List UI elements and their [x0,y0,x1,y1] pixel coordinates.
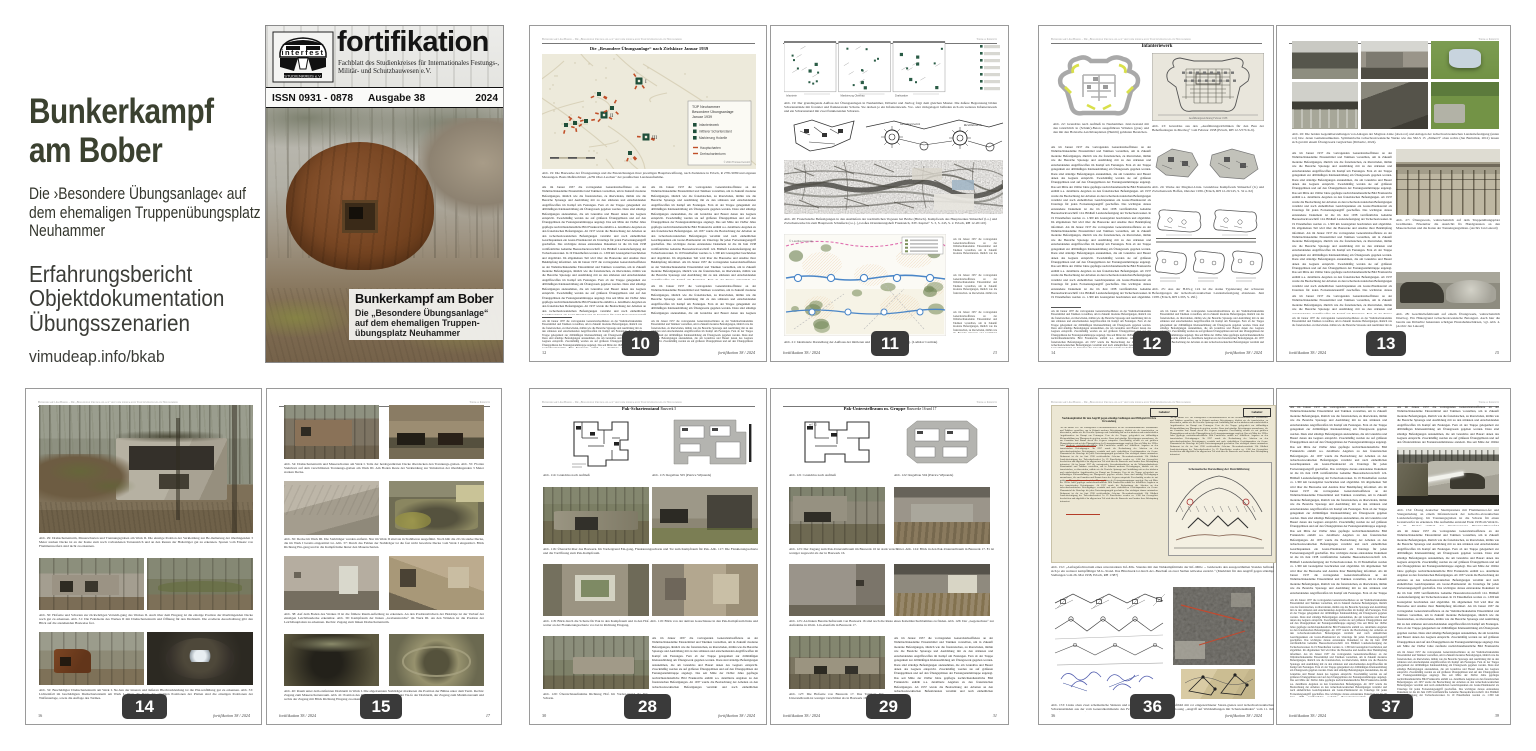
svg-text:Hauptscharten: Hauptscharten [700,146,721,150]
svg-text:Schematische Darstellung der D: Schematische Darstellung der Durchführun… [1188,467,1249,471]
svg-text:© Lastika Cermak: © Lastika Cermak [789,239,813,243]
svg-text:interfest: interfest [281,48,324,57]
svg-text:Januar 1939: Januar 1939 [692,115,712,119]
svg-text:III: III [652,136,657,141]
svg-text:Ausführungszeichnung Februar 1: Ausführungszeichnung Februar 1938 [1189,117,1228,120]
svg-text:TÜP Neuhammer: TÜP Neuhammer [692,105,721,109]
svg-text:Besondere Übungsanlage: Besondere Übungsanlage [692,110,734,114]
svg-text:Markierung Holzelle: Markierung Holzelle [699,136,727,140]
svg-text:Revillenwerk: Revillenwerk [963,123,982,127]
svg-text:m 0 1 2: m 0 1 2 [809,423,818,426]
svg-text:Infanteriewerk: Infanteriewerk [699,123,719,127]
svg-text:II: II [610,114,614,119]
svg-text:Infanterie: Infanterie [786,94,797,98]
svg-text:© 2024 Thomas Kemnitz: © 2024 Thomas Kemnitz [724,161,751,164]
svg-text:Drahtwalze: Drahtwalze [895,94,909,98]
svg-text:STUDIENKREIS e.V.: STUDIENKREIS e.V. [284,74,321,79]
svg-text:Drehschartenturm: Drehschartenturm [700,152,726,156]
svg-text:mittlerer Schartenstand: mittlerer Schartenstand [699,130,732,134]
svg-text:Gewässerwerk: Gewässerwerk [900,122,920,126]
